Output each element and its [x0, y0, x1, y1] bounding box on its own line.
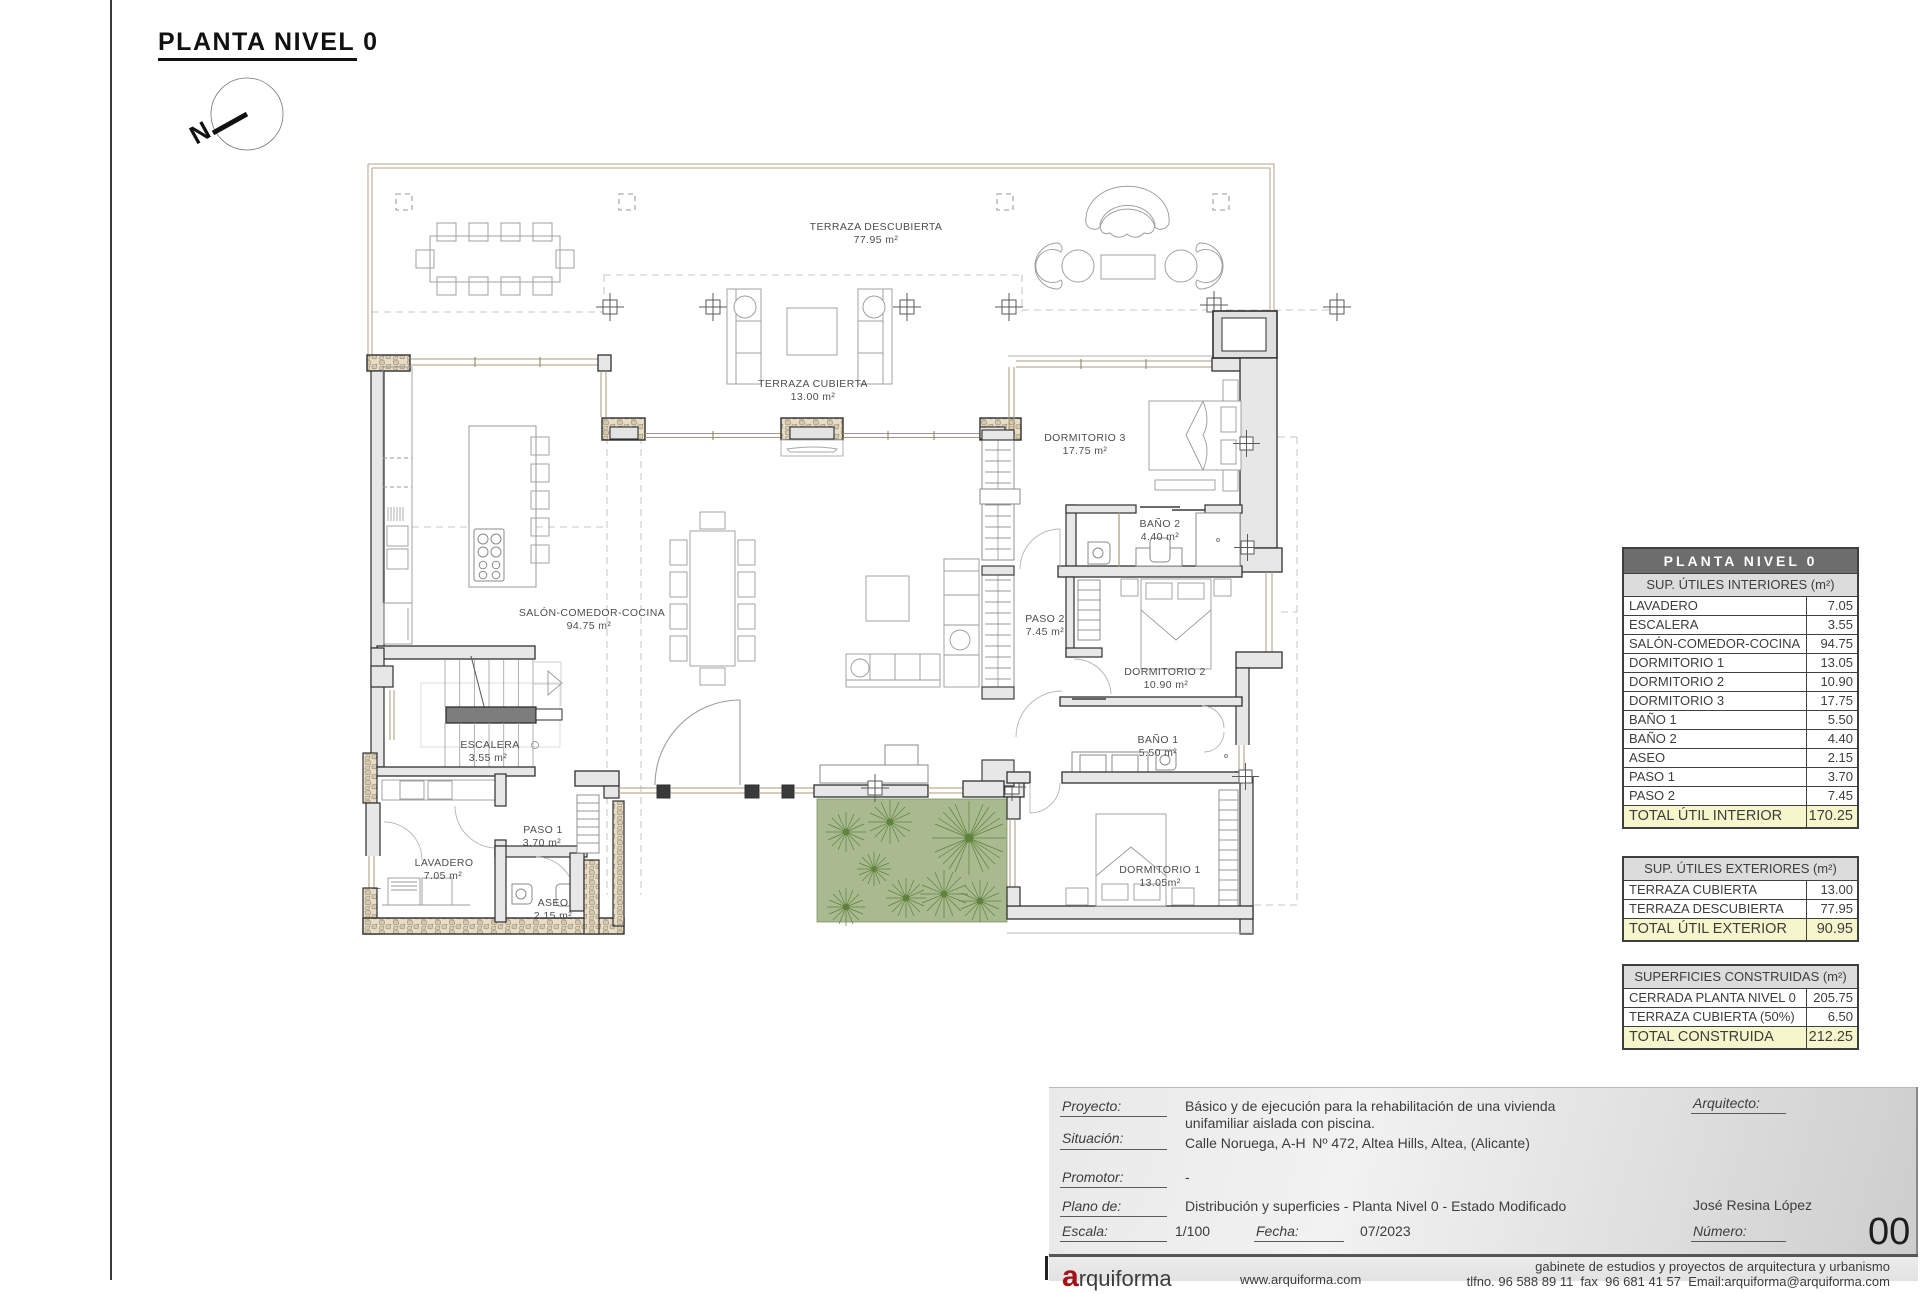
svg-text:ESCALERA: ESCALERA	[460, 739, 519, 751]
svg-text:PASO 2: PASO 2	[1025, 613, 1065, 625]
svg-text:77.95 m²: 77.95 m²	[854, 234, 899, 246]
svg-text:ASEO: ASEO	[538, 897, 569, 909]
svg-text:DORMITORIO 2: DORMITORIO 2	[1124, 666, 1206, 678]
svg-text:BAÑO 2: BAÑO 2	[1140, 517, 1181, 530]
svg-text:BAÑO 1: BAÑO 1	[1138, 733, 1179, 746]
svg-text:SALÓN-COMEDOR-COCINA: SALÓN-COMEDOR-COCINA	[519, 606, 665, 619]
svg-text:3.55 m²: 3.55 m²	[469, 752, 507, 764]
svg-text:DORMITORIO 3: DORMITORIO 3	[1044, 432, 1126, 444]
svg-text:94.75 m²: 94.75 m²	[567, 620, 612, 632]
svg-text:PASO 1: PASO 1	[523, 824, 563, 836]
svg-text:DORMITORIO 1: DORMITORIO 1	[1119, 864, 1201, 876]
svg-text:TERRAZA DESCUBIERTA: TERRAZA DESCUBIERTA	[810, 221, 943, 233]
svg-text:13.05m²: 13.05m²	[1139, 877, 1180, 889]
svg-text:LAVADERO: LAVADERO	[415, 857, 474, 869]
svg-text:7.45 m²: 7.45 m²	[1026, 626, 1064, 638]
svg-text:TERRAZA CUBIERTA: TERRAZA CUBIERTA	[758, 378, 868, 390]
svg-text:10.90 m²: 10.90 m²	[1144, 679, 1189, 691]
svg-text:7.05 m²: 7.05 m²	[424, 870, 462, 882]
svg-text:5.50 m²: 5.50 m²	[1139, 747, 1177, 759]
svg-text:2.15 m²: 2.15 m²	[534, 910, 572, 922]
svg-text:13.00 m²: 13.00 m²	[791, 391, 836, 403]
svg-text:17.75 m²: 17.75 m²	[1063, 445, 1108, 457]
svg-text:4.40 m²: 4.40 m²	[1141, 531, 1179, 543]
